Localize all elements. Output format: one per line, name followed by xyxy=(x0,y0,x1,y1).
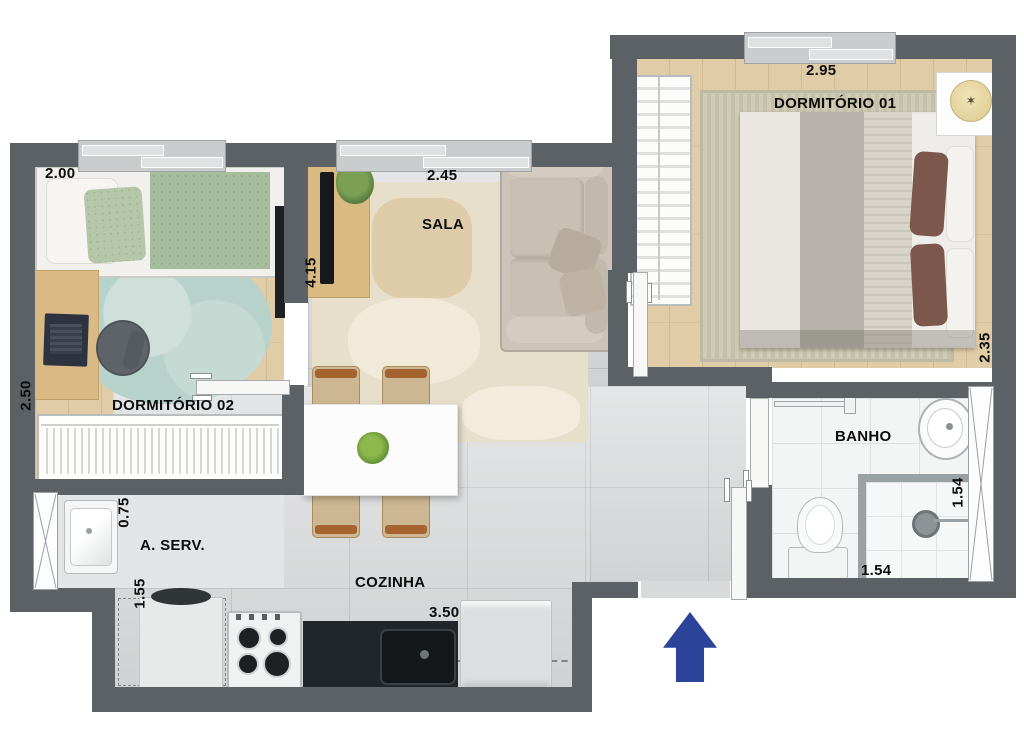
room-label-aserv: A. SERV. xyxy=(140,537,205,554)
double-bed-brown-pillow-2 xyxy=(910,243,948,327)
sofa-pillow-2 xyxy=(558,266,608,318)
dining-chair-4 xyxy=(382,492,430,538)
door-dormitorio01-handle xyxy=(626,281,632,303)
dim-aserv-width: 0.75 xyxy=(116,496,133,530)
dim-banho-width: 1.54 xyxy=(861,562,891,579)
dim-dormitorio02-height: 2.50 xyxy=(18,379,35,413)
door-dormitorio02 xyxy=(196,380,290,395)
ventilation-shaft-right xyxy=(968,386,994,582)
wall-dorm01-left-upper xyxy=(612,35,637,273)
bathroom-sink-basin xyxy=(927,408,963,448)
door-dormitorio02-handle xyxy=(190,373,212,379)
x-cross-icon xyxy=(969,387,993,581)
dining-chair-rail xyxy=(385,369,427,378)
window-sash xyxy=(141,157,223,168)
entrance-arrow-icon xyxy=(663,612,717,682)
door-entry xyxy=(731,487,747,600)
bathroom-faucet xyxy=(946,423,953,430)
double-bed-white-pillow-1 xyxy=(946,146,974,242)
stove-burner-4 xyxy=(263,650,291,678)
ventilation-shaft-left xyxy=(33,492,58,590)
single-bed-green-pillow xyxy=(83,186,146,264)
toilet-bowl-inner xyxy=(805,505,835,545)
towel-bar xyxy=(774,401,854,407)
room-label-banho: BANHO xyxy=(835,428,892,445)
laundry-sink-drain xyxy=(86,528,92,534)
double-bed-blanket-gray xyxy=(800,112,864,348)
dim-dormitorio01-width: 2.95 xyxy=(806,62,836,79)
kitchen-sink xyxy=(380,629,456,685)
dining-chair-rail xyxy=(315,369,357,378)
dim-cozinha-width: 3.50 xyxy=(429,604,459,621)
window-dormitorio02 xyxy=(78,140,226,172)
room-label-sala: SALA xyxy=(422,216,464,233)
window-sash xyxy=(82,145,164,156)
x-cross-icon xyxy=(34,493,57,589)
dormitorio02-wardrobe-rod xyxy=(41,428,279,474)
sala-rug-shape-white2 xyxy=(462,386,580,440)
stove-burner-2 xyxy=(268,627,288,647)
stove-burner-3 xyxy=(237,653,259,675)
wall-left-outer xyxy=(10,143,35,590)
double-bed-duvet-striped xyxy=(864,112,912,348)
dim-aserv-height: 1.55 xyxy=(132,577,149,611)
table-lamp: ✶ xyxy=(950,80,992,122)
entry-threshold xyxy=(638,581,733,598)
window-sash xyxy=(809,49,893,60)
laundry-sink-basin xyxy=(70,508,112,566)
dining-chair-rail xyxy=(315,525,357,534)
wall-service-corner-v xyxy=(92,610,115,690)
lamp-finial-icon: ✶ xyxy=(966,93,977,109)
wall-hall-bathroom-upper xyxy=(746,386,772,398)
refrigerator xyxy=(460,600,552,688)
window-dormitorio01 xyxy=(744,32,896,64)
wall-bottom-kitchen xyxy=(92,687,592,712)
window-sash xyxy=(748,37,832,48)
dim-sala-height: 4.15 xyxy=(303,256,320,290)
door-dormitorio01 xyxy=(633,272,648,377)
washing-machine xyxy=(139,597,223,689)
window-sash xyxy=(340,145,446,156)
kitchen-faucet xyxy=(420,650,429,659)
wall-entry-step-v xyxy=(572,582,592,712)
double-bed-brown-pillow-1 xyxy=(909,151,949,237)
door-entry-handle xyxy=(724,478,730,502)
wall-entry-h xyxy=(572,582,638,598)
room-label-cozinha: COZINHA xyxy=(355,574,425,591)
laptop-keyboard xyxy=(50,324,82,354)
dining-chair-3 xyxy=(312,492,360,538)
door-entry-handle2 xyxy=(746,480,752,502)
stove xyxy=(227,611,302,692)
wall-service-corner-h xyxy=(10,588,115,612)
sala-rug-shape-tan xyxy=(372,198,472,298)
double-bed-white-pillow-2 xyxy=(946,248,974,338)
tv xyxy=(320,172,334,284)
wall-right-outer xyxy=(992,35,1016,598)
room-label-dormitorio01: DORMITÓRIO 01 xyxy=(774,95,896,112)
stove-knobs xyxy=(236,614,288,620)
floor-plan: ✶ xyxy=(0,0,1024,755)
dormitorio02-wardrobe-shelf-line xyxy=(41,424,279,426)
dim-banho-height: 1.54 xyxy=(950,476,967,510)
hall-floor xyxy=(590,386,746,598)
washing-machine-lid xyxy=(151,588,211,605)
room-label-dormitorio02: DORMITÓRIO 02 xyxy=(112,397,234,414)
double-bed-foot-shadow xyxy=(740,330,975,348)
shower-arm xyxy=(934,519,968,522)
dormitorio01-wardrobe-divider xyxy=(658,77,660,300)
stove-burner-1 xyxy=(237,626,261,650)
dim-dormitorio01-height: 2.35 xyxy=(977,331,994,365)
dim-dormitorio02-width: 2.00 xyxy=(45,165,75,182)
single-bed-duvet-green xyxy=(150,172,270,269)
shower-head xyxy=(912,510,940,538)
dim-sala-width: 2.45 xyxy=(427,167,457,184)
dining-chair-rail xyxy=(385,525,427,534)
door-bathroom xyxy=(750,398,769,488)
